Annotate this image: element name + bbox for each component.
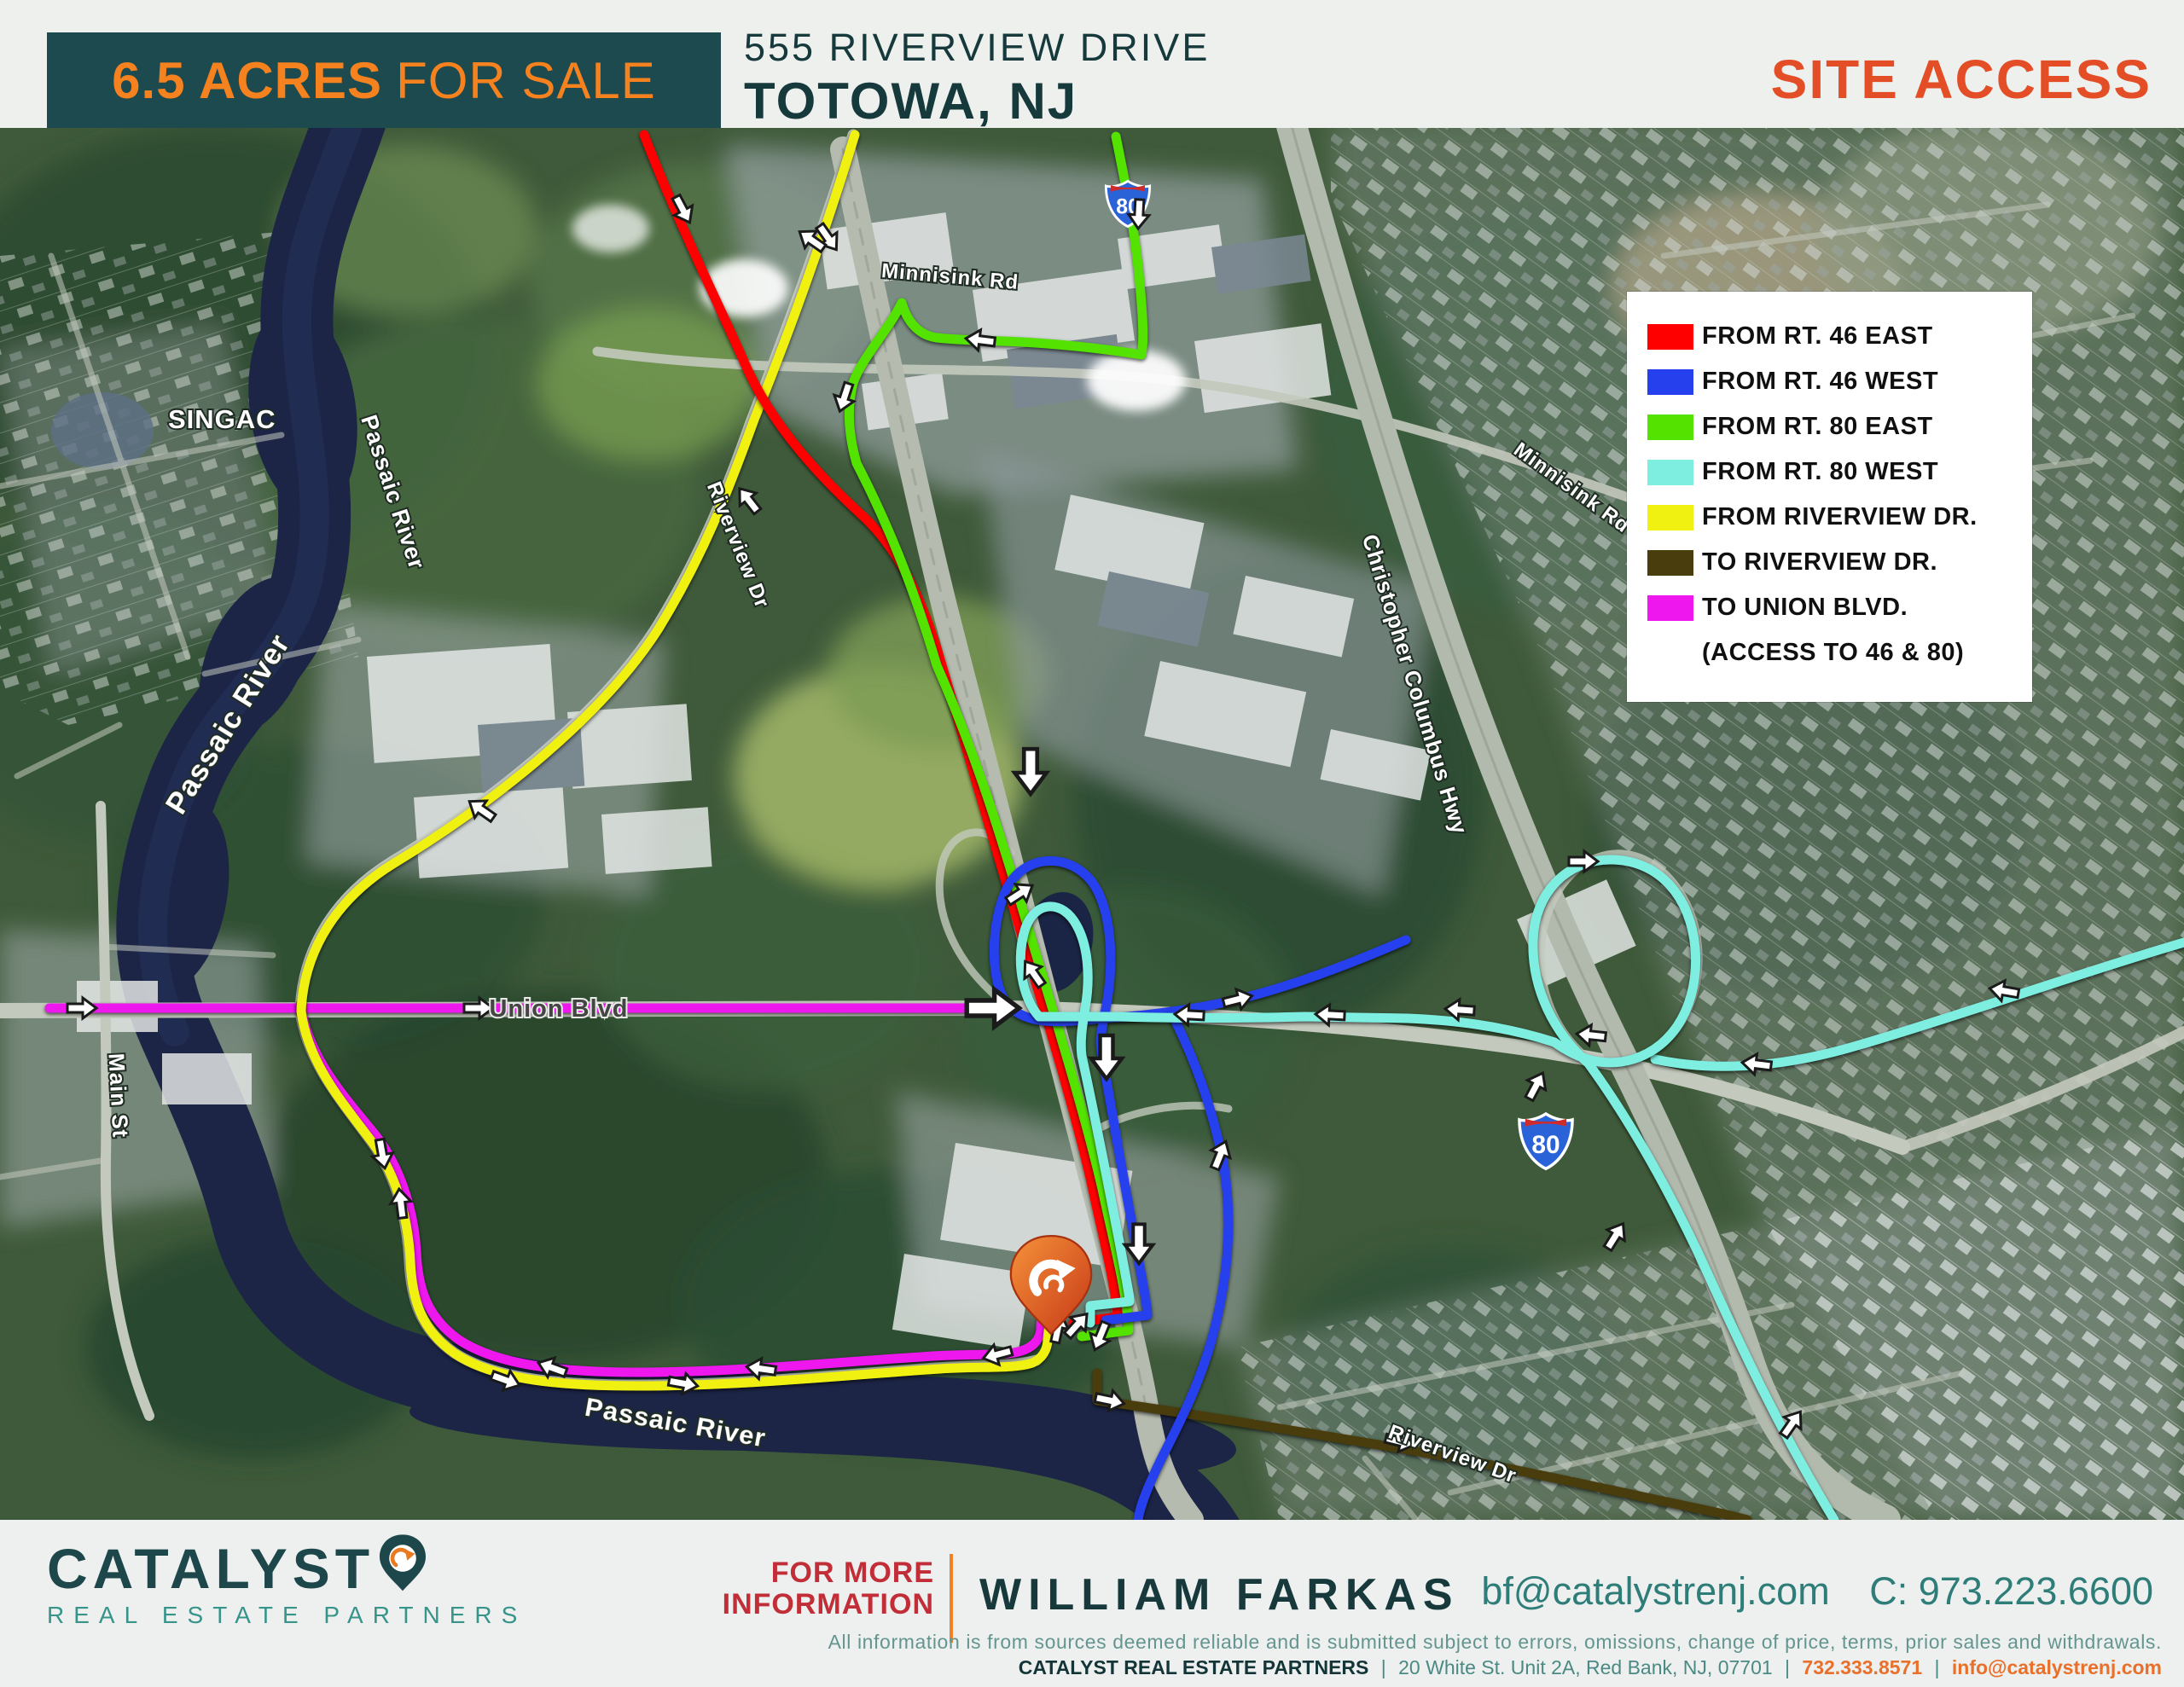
banner-for-sale: FOR SALE: [396, 51, 656, 110]
label-singac: SINGAC: [168, 404, 276, 434]
legend-label: FROM RT. 46 EAST: [1702, 322, 1933, 351]
legend: FROM RT. 46 EAST FROM RT. 46 WEST FROM R…: [1627, 292, 2032, 702]
disclaimer-text: All information is from sources deemed r…: [828, 1631, 2162, 1654]
logo-wordmark: CATALYST: [47, 1540, 375, 1597]
legend-note-row: (ACCESS TO 46 & 80): [1647, 630, 2032, 675]
company-address: 20 White St. Unit 2A, Red Bank, NJ, 0770…: [1398, 1656, 1773, 1678]
agent-phone[interactable]: C: 973.223.6600: [1869, 1569, 2153, 1613]
address-street: 555 RIVERVIEW DRIVE: [744, 26, 1210, 70]
logo-pin-icon: [378, 1530, 427, 1597]
legend-item: TO UNION BLVD.: [1647, 585, 2032, 630]
info-line2: INFORMATION: [597, 1589, 934, 1620]
banner-acres: 6.5 ACRES: [112, 51, 382, 110]
legend-item: FROM RT. 80 EAST: [1647, 404, 2032, 449]
legend-item: FROM RT. 46 WEST: [1647, 359, 2032, 404]
company-phone[interactable]: 732.333.8571: [1802, 1656, 1922, 1678]
legend-item: FROM RT. 80 WEST: [1647, 449, 2032, 495]
company-email-link[interactable]: info@catalystrenj.com: [1952, 1656, 2162, 1678]
company-name: CATALYST REAL ESTATE PARTNERS: [1019, 1656, 1369, 1678]
agent-name: WILLIAM FARKAS: [979, 1569, 1460, 1620]
legend-label: FROM RT. 80 EAST: [1702, 413, 1933, 441]
legend-swatch-rt80-west: [1647, 460, 1693, 485]
legend-swatch-from-riverview: [1647, 505, 1693, 530]
address-city: TOTOWA, NJ: [744, 72, 1210, 130]
footer-divider: [950, 1554, 953, 1643]
company-logo: CATALYST REAL ESTATE PARTNERS: [47, 1530, 526, 1629]
legend-label: FROM RIVERVIEW DR.: [1702, 503, 1978, 531]
legend-swatch-to-union-blvd: [1647, 595, 1693, 621]
label-union-blvd: Union Blvd: [489, 995, 628, 1023]
legend-item: FROM RIVERVIEW DR.: [1647, 495, 2032, 540]
property-address: 555 RIVERVIEW DRIVE TOTOWA, NJ: [744, 26, 1210, 130]
legend-item: FROM RT. 46 EAST: [1647, 314, 2032, 359]
separator: |: [1928, 1656, 1947, 1678]
legend-item: TO RIVERVIEW DR.: [1647, 540, 2032, 585]
for-sale-banner: 6.5 ACRES FOR SALE: [47, 32, 721, 128]
footer: CATALYST REAL ESTATE PARTNERS FOR MORE I…: [0, 1520, 2184, 1687]
label-main-st: Main St: [103, 1052, 133, 1139]
legend-swatch-rt46-east: [1647, 324, 1693, 350]
legend-swatch-to-riverview: [1647, 550, 1693, 576]
company-info-line: CATALYST REAL ESTATE PARTNERS | 20 White…: [1019, 1656, 2162, 1679]
legend-swatch-rt80-east: [1647, 415, 1693, 440]
separator: |: [1374, 1656, 1393, 1678]
legend-label: FROM RT. 80 WEST: [1702, 458, 1938, 486]
flyer-page: 6.5 ACRES FOR SALE 555 RIVERVIEW DRIVE T…: [0, 0, 2184, 1687]
legend-label: TO RIVERVIEW DR.: [1702, 548, 1937, 577]
info-line1: FOR MORE: [597, 1557, 934, 1589]
legend-label: FROM RT. 46 WEST: [1702, 368, 1938, 396]
legend-label: TO UNION BLVD.: [1702, 594, 1908, 622]
legend-swatch-rt46-west: [1647, 369, 1693, 395]
agent-email-link[interactable]: bf@catalystrenj.com: [1481, 1569, 1829, 1613]
svg-text:80: 80: [1531, 1131, 1560, 1159]
separator: |: [1778, 1656, 1797, 1678]
for-more-information-label: FOR MORE INFORMATION: [597, 1557, 934, 1620]
page-title: SITE ACCESS: [1771, 48, 2152, 111]
agent-contact: bf@catalystrenj.com C: 973.223.6600: [1481, 1569, 2153, 1614]
legend-note: (ACCESS TO 46 & 80): [1702, 639, 1964, 667]
logo-subtitle: REAL ESTATE PARTNERS: [47, 1602, 526, 1629]
